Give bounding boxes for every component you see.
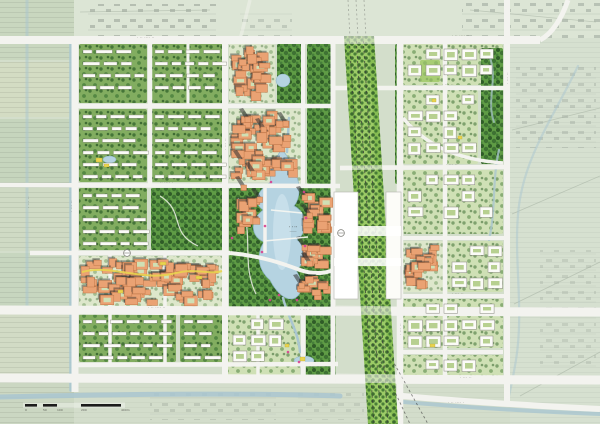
building-residential	[201, 344, 210, 347]
courtyard-garden	[411, 114, 420, 118]
building-tower	[251, 171, 257, 177]
building-commercial	[147, 300, 158, 306]
building-commercial	[133, 288, 145, 294]
building-residential	[83, 50, 92, 53]
building-residential	[121, 62, 132, 65]
building-commercial	[411, 249, 422, 255]
road-label: ·· ···· ·	[135, 360, 148, 364]
building-residential	[131, 356, 145, 359]
flower-accent	[287, 351, 290, 354]
building-residential	[188, 115, 201, 118]
courtyard-garden	[272, 338, 278, 344]
building-commercial	[236, 71, 246, 78]
building-yellow	[118, 290, 123, 293]
building-yellow	[285, 344, 289, 347]
building-residential	[110, 320, 122, 323]
road-label: · ··· ··	[446, 163, 458, 167]
courtyard-garden	[429, 339, 438, 344]
building-tower	[241, 185, 247, 191]
building-residential	[155, 163, 168, 166]
building-residential	[203, 74, 215, 77]
building-commercial	[236, 87, 243, 95]
building-commercial	[317, 220, 327, 229]
road-label: · ··· ··	[506, 72, 510, 84]
building-residential	[133, 151, 148, 154]
building-residential	[116, 50, 131, 53]
courtyard-garden	[411, 339, 419, 345]
building-commercial	[305, 277, 313, 283]
flower-accent	[296, 299, 299, 302]
courtyard-garden	[254, 338, 263, 343]
road-label: · ·· ···· ··	[452, 34, 470, 38]
building-residential	[96, 194, 107, 197]
building-residential	[83, 139, 98, 142]
building-residential	[133, 230, 149, 233]
road-label: · ··· ··	[460, 376, 472, 380]
building-residential	[96, 50, 112, 53]
courtyard-garden	[447, 178, 456, 182]
building-commercial	[308, 246, 320, 252]
sketch-texture	[0, 0, 74, 60]
road-label: · ·· ···· ·	[448, 401, 464, 405]
building-commercial	[256, 84, 268, 92]
flower-accent	[231, 237, 234, 240]
courtyard-garden	[483, 68, 489, 72]
road	[0, 185, 340, 186]
scale-bar-label: 0	[25, 408, 27, 412]
sketch-texture	[516, 64, 596, 148]
building-residential	[155, 115, 164, 118]
building-residential	[168, 127, 178, 130]
building-commercial	[143, 281, 156, 287]
building-residential	[188, 86, 201, 89]
building-residential	[122, 163, 137, 166]
courtyard	[266, 119, 272, 123]
road-over-rail	[336, 310, 404, 311]
building-residential	[189, 175, 206, 178]
courtyard	[104, 298, 111, 303]
building-residential	[191, 163, 206, 166]
building-residential	[159, 332, 172, 335]
courtyard-garden	[455, 265, 464, 270]
building-residential	[134, 74, 144, 77]
scale-bar-label: 400m	[121, 408, 130, 412]
flower-accent	[304, 245, 307, 248]
building-residential	[96, 320, 106, 323]
building-commercial	[417, 280, 426, 289]
building-yellow	[300, 357, 305, 361]
building-residential	[168, 115, 184, 118]
courtyard-garden	[465, 98, 471, 101]
courtyard-garden	[429, 146, 437, 150]
building-residential	[83, 320, 92, 323]
building-residential	[210, 175, 226, 178]
building-residential	[172, 62, 181, 65]
building-residential	[185, 151, 198, 154]
building-residential	[110, 115, 124, 118]
building-yellow	[160, 262, 166, 265]
building-residential	[170, 74, 183, 77]
building-residential	[184, 320, 193, 323]
building-residential	[144, 320, 158, 323]
building-commercial	[246, 47, 253, 55]
building-residential	[83, 218, 98, 221]
courtyard-garden	[254, 354, 261, 358]
building-residential	[204, 50, 220, 53]
courtyard	[323, 200, 330, 205]
sketch-texture	[0, 253, 74, 308]
building-residential	[100, 242, 116, 245]
road-label: · ·· ···· ··	[148, 306, 166, 310]
building-commercial	[282, 141, 290, 147]
building-residential	[133, 175, 143, 178]
station-platform	[386, 192, 401, 299]
sketch-texture	[0, 185, 74, 251]
building-residential	[212, 62, 226, 65]
building-commercial	[248, 199, 256, 207]
building-residential	[205, 356, 221, 359]
road-label: ·· ···· ·	[160, 181, 173, 185]
courtyard-garden	[465, 68, 474, 74]
building-residential	[187, 74, 199, 77]
building-commercial	[431, 245, 440, 250]
station-building	[334, 192, 358, 299]
courtyard-garden	[465, 146, 473, 149]
building-residential	[125, 344, 139, 347]
courtyard-garden	[465, 194, 472, 199]
building-commercial	[318, 283, 328, 289]
courtyard-garden	[447, 210, 455, 215]
courtyard-garden	[447, 146, 456, 150]
building-residential	[161, 320, 172, 323]
sketch-texture	[0, 378, 74, 424]
sketch-texture	[74, 382, 510, 424]
courtyard	[187, 298, 194, 303]
building-yellow	[104, 164, 109, 167]
building-yellow	[432, 99, 436, 102]
courtyard-garden	[465, 363, 473, 369]
road-label: ·· ···· ·	[170, 101, 183, 105]
scale-bar-segment	[81, 404, 121, 407]
building-residential	[83, 74, 95, 77]
tree-texture	[79, 109, 147, 182]
map-canvas: · ·· ···· ··· ·· ···· ···· ···· ··· ····…	[0, 0, 600, 424]
building-residential	[155, 175, 164, 178]
building-commercial	[87, 277, 94, 287]
road-label: · ··· ··	[452, 292, 464, 296]
road-label: · ··· ··	[399, 323, 403, 335]
building-tower	[307, 213, 313, 219]
courtyard-garden	[429, 363, 436, 366]
building-residential	[118, 86, 131, 89]
courtyard	[246, 219, 250, 222]
courtyard-garden	[429, 178, 435, 182]
building-residential	[185, 62, 194, 65]
courtyard	[307, 196, 312, 200]
scale-bar-label: 100	[57, 408, 63, 412]
courtyard-garden	[465, 178, 472, 182]
building-commercial	[203, 290, 212, 299]
building-commercial	[259, 63, 270, 68]
building-residential	[102, 218, 113, 221]
scale-bar-segment	[43, 404, 57, 407]
building-commercial	[94, 260, 101, 265]
building-commercial	[269, 137, 282, 145]
courtyard	[242, 133, 249, 136]
building-residential	[83, 242, 96, 245]
building-commercial	[83, 287, 96, 293]
lake-label: ·······	[289, 230, 296, 234]
road-over-rail	[340, 167, 404, 168]
building-residential	[155, 86, 169, 89]
building-commercial	[124, 286, 132, 296]
building-residential	[202, 151, 217, 154]
building-residential	[83, 115, 92, 118]
courtyard	[253, 164, 260, 168]
building-residential	[117, 356, 127, 359]
building-residential	[203, 139, 219, 142]
flower-accent	[298, 361, 301, 364]
road-label: · ··· ··	[224, 138, 228, 150]
building-residential	[155, 50, 164, 53]
courtyard-garden	[411, 194, 418, 199]
flower-accent	[261, 251, 264, 254]
courtyard	[237, 79, 244, 82]
building-commercial	[203, 280, 210, 288]
flower-accent	[303, 191, 306, 194]
courtyard-garden	[429, 323, 437, 328]
building-residential	[83, 344, 100, 347]
courtyard-garden	[447, 114, 454, 117]
road-label: · ··· ··	[442, 83, 454, 87]
courtyard-garden	[447, 339, 456, 343]
building-residential	[123, 139, 135, 142]
courtyard-garden	[483, 52, 490, 56]
building-residential	[168, 175, 185, 178]
tree-texture	[307, 44, 331, 184]
building-residential	[83, 62, 100, 65]
building-residential	[157, 344, 172, 347]
building-commercial	[251, 91, 261, 100]
building-residential	[83, 332, 95, 335]
flower-accent	[269, 299, 272, 302]
sketch-texture	[0, 119, 74, 183]
station-deck	[334, 258, 401, 266]
building-residential	[99, 74, 111, 77]
building-tower	[283, 121, 289, 127]
building-tower	[302, 195, 308, 201]
scale-bar-label: 200	[81, 408, 87, 412]
courtyard-garden	[447, 130, 453, 136]
building-residential	[198, 62, 208, 65]
building-commercial	[182, 291, 193, 296]
building-residential	[205, 86, 215, 89]
flower-accent	[264, 225, 267, 228]
building-tower	[239, 159, 245, 165]
building-residential	[127, 320, 140, 323]
building-residential	[83, 151, 93, 154]
building-residential	[168, 50, 182, 53]
courtyard-garden	[447, 307, 455, 310]
building-residential	[169, 151, 180, 154]
masterplan-map: · ·· ···· ··· ·· ···· ···· ···· ··· ····…	[0, 0, 600, 424]
courtyard-garden	[236, 338, 243, 342]
road-label: · ··· ··	[140, 248, 152, 252]
building-residential	[155, 151, 165, 154]
building-residential	[155, 74, 166, 77]
building-residential	[83, 230, 96, 233]
pond	[276, 74, 290, 87]
building-residential	[104, 62, 117, 65]
building-yellow	[430, 344, 435, 347]
courtyard-garden	[411, 323, 419, 329]
building-residential	[149, 356, 163, 359]
courtyard-garden	[411, 130, 418, 133]
road-label: · ··· ··	[300, 308, 312, 312]
building-tower	[261, 127, 267, 133]
building-residential	[197, 320, 213, 323]
courtyard-garden	[411, 210, 420, 213]
sketch-texture	[0, 62, 74, 117]
building-commercial	[303, 228, 312, 234]
courtyard-garden	[447, 52, 455, 57]
building-residential	[155, 139, 169, 142]
building-commercial	[312, 290, 321, 296]
building-residential	[126, 194, 140, 197]
road-label: · ··· ··	[27, 196, 31, 208]
building-residential	[102, 175, 111, 178]
building-residential	[111, 194, 121, 197]
courtyard-garden	[491, 265, 497, 269]
courtyard-garden	[429, 68, 437, 73]
building-yellow	[96, 158, 102, 162]
flower-accent	[270, 181, 273, 184]
building-residential	[121, 242, 130, 245]
building-tower	[257, 197, 263, 203]
building-residential	[134, 242, 149, 245]
building-tower	[245, 117, 251, 123]
building-residential	[182, 127, 196, 130]
building-residential	[115, 175, 129, 178]
building-commercial	[168, 285, 181, 291]
road-label: · ··· ··	[488, 194, 492, 206]
courtyard-garden	[491, 281, 500, 285]
courtyard-garden	[429, 307, 436, 310]
building-residential	[155, 127, 164, 130]
building-residential	[100, 86, 114, 89]
building-residential	[130, 332, 139, 335]
building-tower	[307, 261, 313, 267]
building-residential	[125, 127, 136, 130]
courtyard	[249, 146, 254, 149]
courtyard	[284, 165, 290, 168]
building-commercial	[127, 278, 135, 287]
courtyard-garden	[491, 249, 499, 253]
courtyard-garden	[483, 339, 490, 343]
building-commercial	[261, 75, 271, 83]
building-residential	[184, 356, 201, 359]
building-residential	[184, 332, 195, 335]
building-residential	[83, 194, 92, 197]
building-residential	[102, 139, 119, 142]
courtyard	[174, 278, 180, 282]
road-label: · ··· ··	[70, 200, 74, 212]
building-residential	[210, 163, 226, 166]
lake-label: · · ··	[289, 225, 297, 229]
building-residential	[97, 151, 109, 154]
building-residential	[172, 163, 188, 166]
scale-bar-segment	[25, 404, 37, 407]
building-residential	[143, 344, 153, 347]
building-commercial	[253, 73, 261, 80]
building-commercial	[233, 125, 246, 133]
building-residential	[187, 139, 199, 142]
building-residential	[112, 127, 122, 130]
building-residential	[199, 332, 212, 335]
building-commercial	[418, 263, 430, 270]
lake-highlight	[273, 194, 291, 270]
courtyard-garden	[429, 52, 437, 56]
building-residential	[205, 115, 220, 118]
building-commercial	[319, 215, 331, 221]
building-residential	[83, 206, 99, 209]
building-residential	[134, 218, 146, 221]
building-residential	[117, 218, 129, 221]
building-residential	[144, 332, 155, 335]
courtyard-garden	[254, 322, 260, 326]
building-residential	[96, 115, 106, 118]
building-yellow	[196, 276, 202, 279]
building-residential	[83, 163, 99, 166]
building-residential	[99, 356, 113, 359]
pond	[103, 156, 116, 163]
courtyard-garden	[455, 281, 464, 284]
courtyard-garden	[236, 354, 244, 359]
building-residential	[104, 344, 121, 347]
building-commercial	[248, 54, 257, 64]
building-residential	[112, 332, 126, 335]
canal	[0, 394, 340, 397]
tree-texture	[151, 109, 225, 182]
building-residential	[103, 206, 119, 209]
building-commercial	[175, 264, 187, 271]
courtyard-garden	[465, 52, 474, 57]
courtyard-garden	[447, 68, 454, 72]
building-yellow	[458, 136, 462, 139]
courtyard-garden	[447, 363, 454, 368]
courtyard-garden	[411, 68, 418, 73]
building-commercial	[125, 299, 138, 305]
building-residential	[83, 86, 96, 89]
road	[75, 364, 338, 365]
scale-bar-label: 50	[43, 408, 47, 412]
building-residential	[173, 139, 183, 142]
courtyard-garden	[429, 114, 437, 119]
sketch-texture	[0, 310, 74, 376]
tree-texture	[277, 44, 303, 103]
building-residential	[83, 127, 93, 130]
building-residential	[115, 74, 131, 77]
sketch-texture	[462, 0, 600, 38]
sketch-texture	[88, 4, 216, 36]
building-commercial	[239, 60, 246, 66]
building-residential	[83, 356, 95, 359]
courtyard-garden	[483, 210, 490, 214]
courtyard-garden	[411, 146, 418, 152]
building-residential	[100, 230, 115, 233]
building-residential	[97, 127, 108, 130]
flower-accent	[278, 294, 281, 297]
